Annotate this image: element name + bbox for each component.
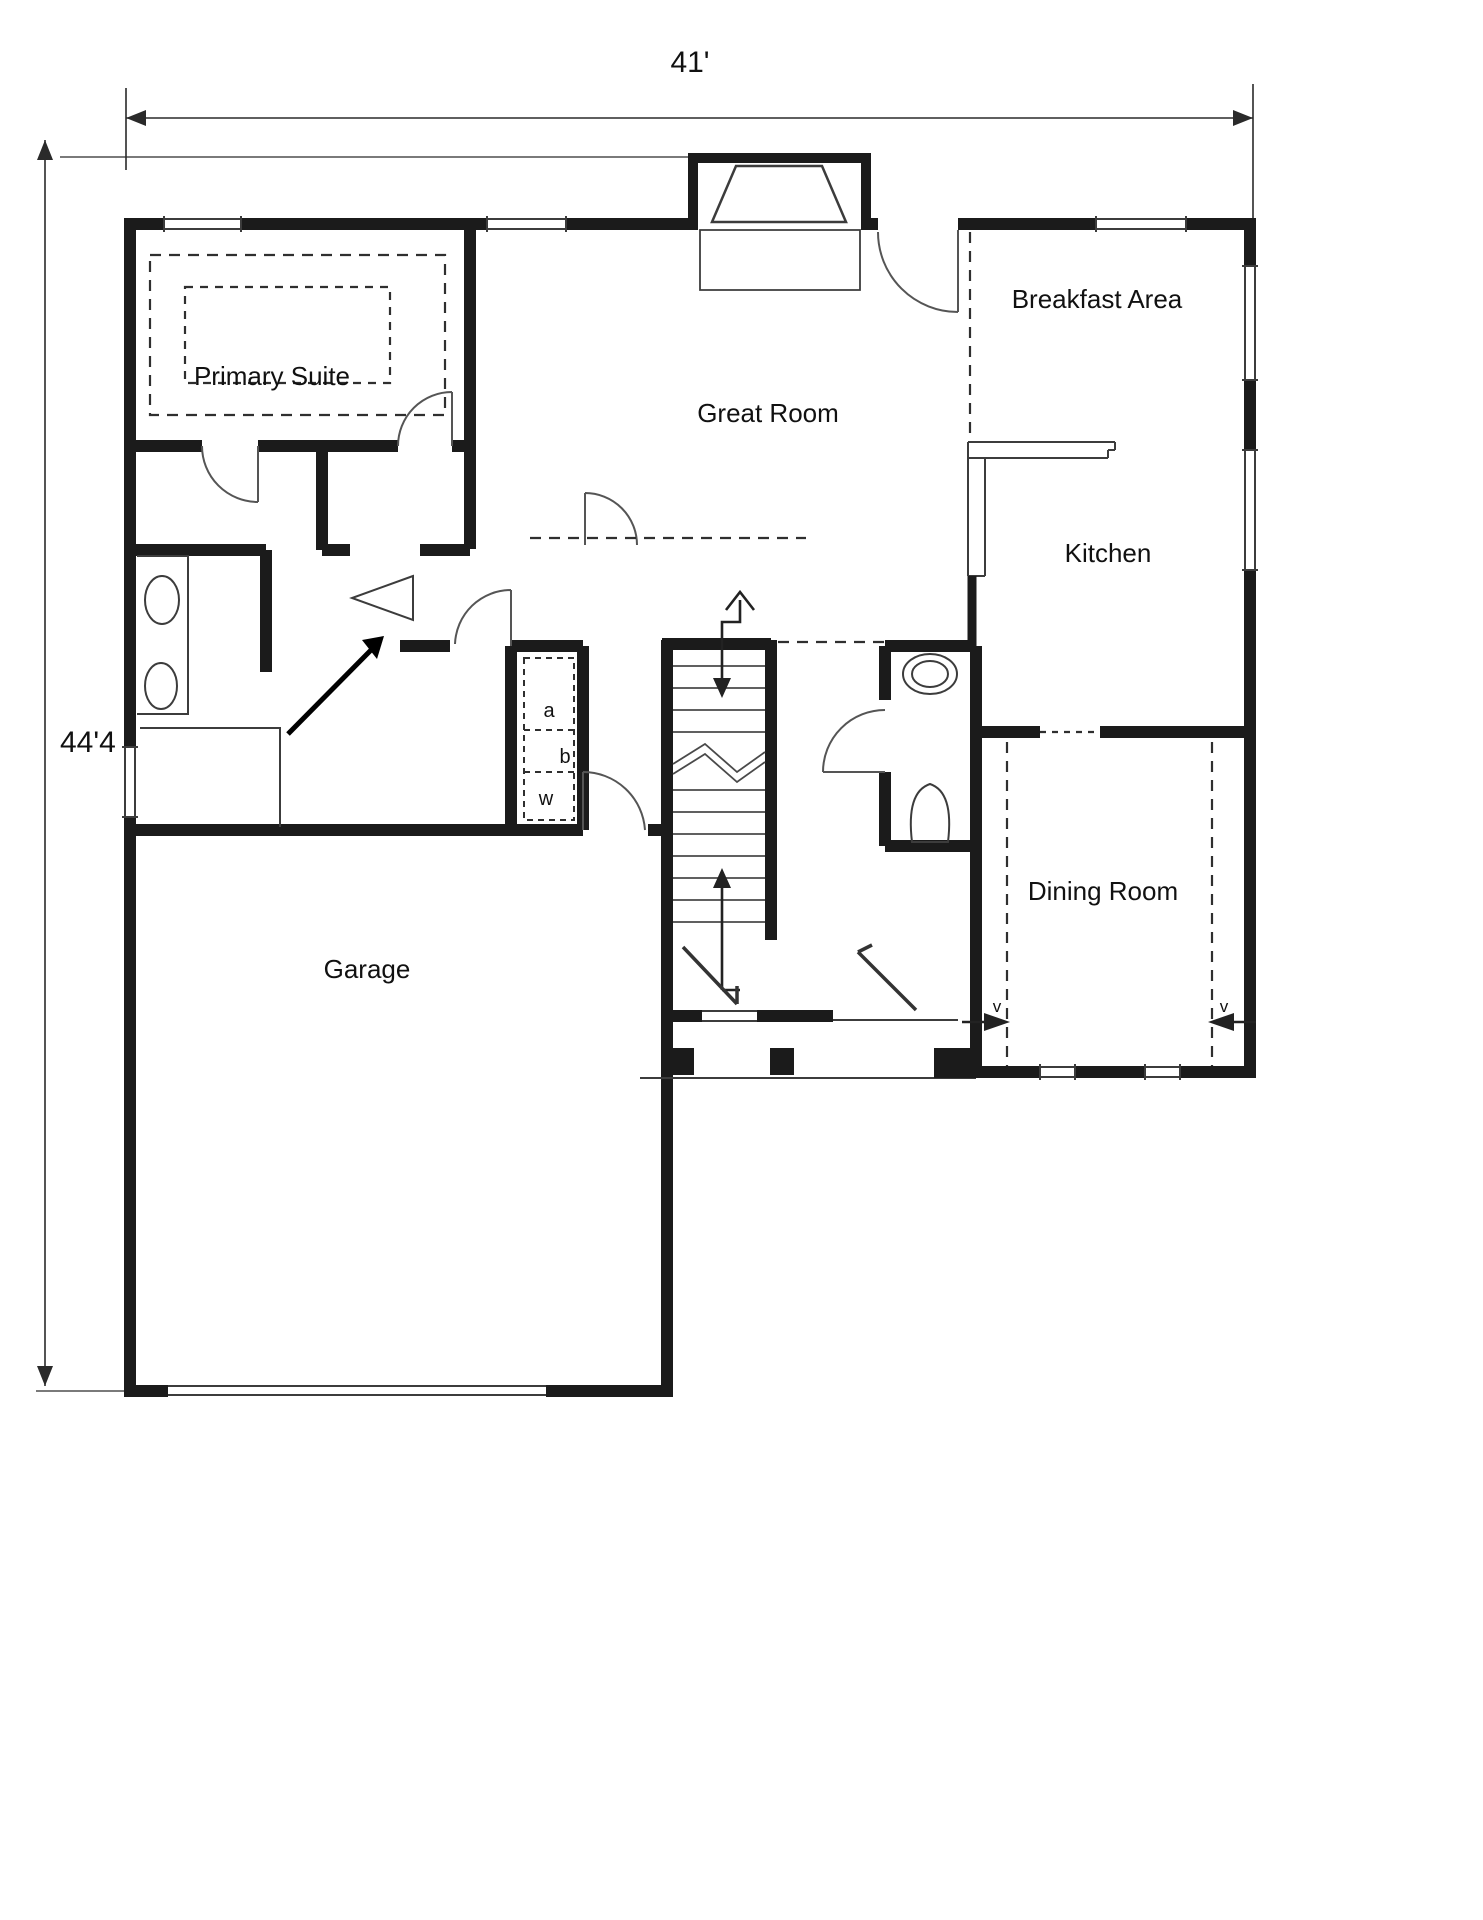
closet-label-a: a <box>543 700 555 722</box>
windows <box>122 216 1258 1395</box>
fireplace <box>700 166 860 290</box>
vent-label-right: v <box>1220 997 1229 1016</box>
width-dimension-label: 41' <box>670 46 709 79</box>
floor-plan-drawing: 41' 44'4 <box>0 0 1483 1920</box>
closet-label-b: b <box>559 746 570 768</box>
walls <box>124 158 1256 1397</box>
room-label-great-room: Great Room <box>697 398 839 428</box>
room-label-primary-suite: Primary Suite <box>194 361 350 391</box>
room-label-kitchen: Kitchen <box>1065 538 1152 568</box>
floor-plan-page: 41' 44'4 <box>0 0 1483 1920</box>
porch-columns <box>672 1048 976 1078</box>
closet-label-w: w <box>538 788 554 810</box>
room-label-dining-room: Dining Room <box>1028 876 1178 906</box>
annotation-arrow <box>288 636 384 734</box>
depth-dimension-label: 44'4 <box>60 726 116 759</box>
vent-label-left: v <box>993 997 1002 1016</box>
room-label-garage: Garage <box>324 954 411 984</box>
stair-direction-arrows <box>722 592 754 990</box>
room-label-breakfast-area: Breakfast Area <box>1012 284 1183 314</box>
dimension-lines <box>36 84 1253 1391</box>
